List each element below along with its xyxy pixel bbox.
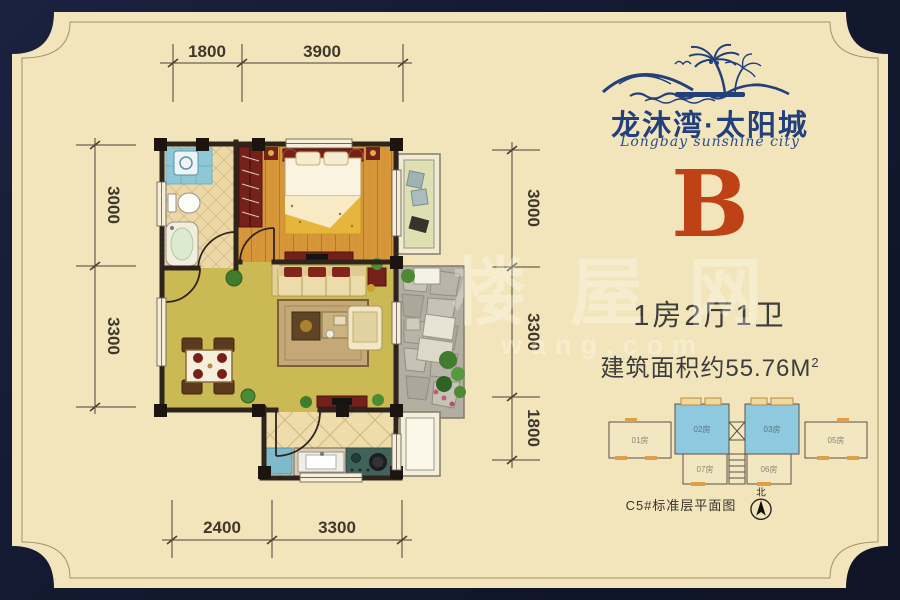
dim-label: 3900 [303,42,341,61]
dim-label: 1800 [188,42,226,61]
unit-area-text: 建筑面积约55.76M2 [560,348,860,383]
dim-label: 2400 [203,518,241,537]
dim-label: 3000 [104,186,123,224]
keyplan-caption-row: C5#标准层平面图 北 [560,486,840,522]
bedroom-balcony [398,154,440,254]
keyplan-unit-label: 02房 [694,424,711,434]
info-panel: 龙沐湾·太阳城 Longbay sunshine city B 1房2厅1卫 建… [555,40,875,560]
keyplan-caption: C5#标准层平面图 [626,495,737,514]
keyplan-unit-label: 05房 [828,435,845,445]
dim-label: 3300 [104,317,123,355]
dim-label: 1800 [524,409,543,447]
svg-text:北: 北 [757,488,767,499]
unit-layout-text: 1房2厅1卫 [560,292,860,334]
north-arrow-icon: 北 [748,486,774,522]
unit-type-letter: B [560,158,860,250]
kitchen-fixtures [266,448,396,476]
dim-label: 3300 [524,313,543,351]
dim-label: 3300 [318,518,356,537]
keyplan-unit-label: 06房 [761,464,778,474]
keyplan-unit-label: 01房 [632,435,649,445]
keyplan-diagram: 01房 02房 03房 05房 07房 06房 [605,392,881,492]
floorplan-svg: 1800 3900 3000 3300 3000 3300 1800 2400 … [0,0,560,600]
brand-logo-icon [575,42,845,104]
keyplan-unit-label: 03房 [764,424,781,434]
brand-name-en: Longbay sunshine city [560,134,860,150]
keyplan-unit-label: 07房 [697,464,714,474]
dim-label: 3000 [524,189,543,227]
bottom-balcony [400,412,440,476]
patio-garden [398,266,466,418]
